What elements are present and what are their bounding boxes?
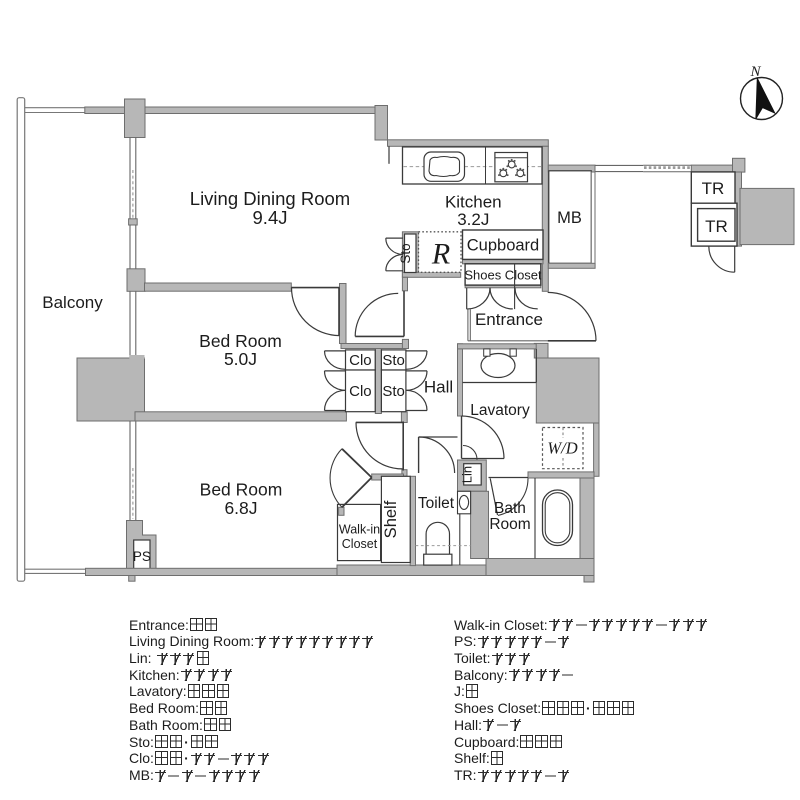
svg-text:TR: TR bbox=[702, 179, 725, 198]
svg-text:Sto: Sto bbox=[398, 243, 413, 263]
svg-text:W/D: W/D bbox=[547, 439, 577, 458]
svg-text:Toilet: Toilet bbox=[418, 495, 455, 512]
svg-text:Sto: Sto bbox=[382, 383, 405, 400]
svg-text:TR: TR bbox=[705, 217, 728, 236]
svg-text:Bath: Bath bbox=[494, 500, 526, 517]
svg-text:R: R bbox=[431, 238, 450, 271]
svg-text:Shoes Closet: Shoes Closet bbox=[464, 268, 542, 283]
svg-text:Balcony: Balcony bbox=[42, 293, 103, 312]
svg-text:Lin: Lin bbox=[460, 466, 475, 483]
svg-text:Hall: Hall bbox=[424, 378, 453, 397]
svg-text:9.4J: 9.4J bbox=[253, 207, 288, 228]
svg-text:Shelf: Shelf bbox=[382, 500, 400, 538]
svg-text:Clo: Clo bbox=[349, 383, 372, 400]
svg-text:Closet: Closet bbox=[342, 537, 378, 551]
svg-text:5.0J: 5.0J bbox=[224, 349, 257, 369]
svg-text:3.2J: 3.2J bbox=[457, 210, 489, 229]
svg-text:Living Dining Room: Living Dining Room bbox=[190, 188, 350, 209]
svg-text:Room: Room bbox=[489, 516, 530, 533]
svg-text:Kitchen: Kitchen bbox=[445, 193, 502, 212]
svg-text:Entrance: Entrance bbox=[475, 310, 543, 329]
svg-text:Bed Room: Bed Room bbox=[200, 480, 283, 500]
svg-text:6.8J: 6.8J bbox=[224, 498, 257, 518]
svg-text:MB: MB bbox=[557, 209, 582, 227]
svg-text:Walk-in: Walk-in bbox=[339, 523, 380, 537]
svg-text:Sto: Sto bbox=[382, 352, 405, 369]
svg-text:Lavatory: Lavatory bbox=[470, 402, 530, 419]
svg-text:PS: PS bbox=[133, 549, 151, 564]
svg-text:Cupboard: Cupboard bbox=[467, 237, 539, 255]
svg-text:Clo: Clo bbox=[349, 352, 372, 369]
svg-text:Bed Room: Bed Room bbox=[199, 331, 282, 351]
